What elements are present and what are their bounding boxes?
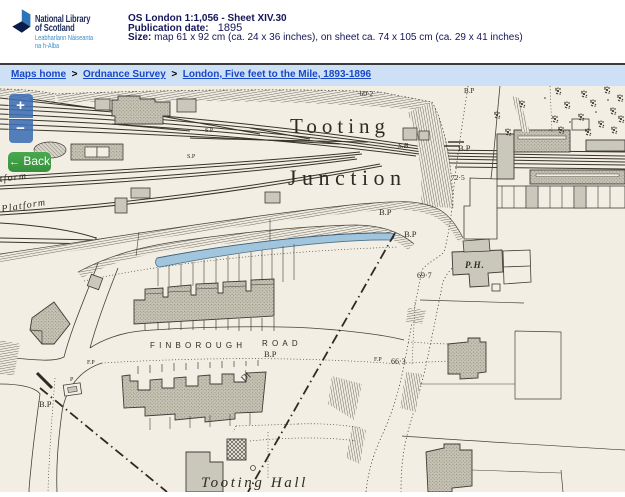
svg-text:ROAD: ROAD [262,339,302,348]
svg-text:S.P: S.P [187,154,196,160]
svg-text:72·5: 72·5 [451,173,465,182]
svg-text:B.P: B.P [458,143,471,153]
svg-text:Junction: Junction [288,165,407,190]
svg-text:B.P: B.P [39,399,52,409]
svg-text:F.P: F.P [87,360,95,366]
svg-text:69·7: 69·7 [417,271,432,280]
svg-text:Tooting: Tooting [290,114,390,138]
svg-text:S.P: S.P [205,128,214,134]
svg-text:FINBOROUGH: FINBOROUGH [150,341,246,350]
svg-text:B.P: B.P [464,87,474,95]
svg-text:S.B: S.B [398,141,409,150]
svg-text:F.P: F.P [374,357,382,363]
svg-text:B.P: B.P [264,349,277,359]
svg-text:66·3: 66·3 [391,357,406,366]
svg-text:B.P: B.P [379,207,392,217]
svg-text:B.P: B.P [404,229,417,239]
svg-text:·60·2: ·60·2 [357,89,373,98]
svg-text:P.H.: P.H. [465,260,485,270]
svg-text:Tooting Hall: Tooting Hall [201,475,308,491]
